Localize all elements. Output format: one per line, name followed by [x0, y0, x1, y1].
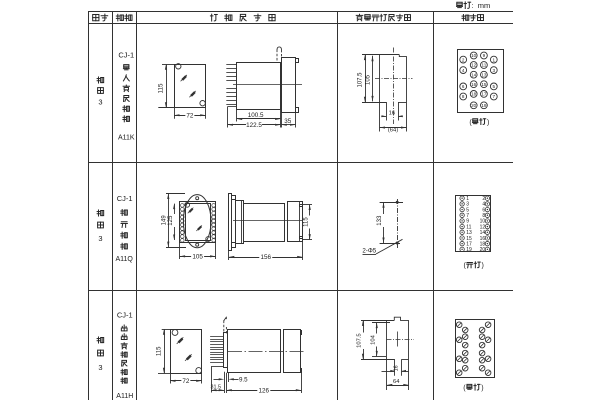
svg-text:9.5: 9.5: [239, 377, 248, 384]
svg-text:104: 104: [370, 334, 376, 344]
svg-text:13: 13: [481, 72, 487, 77]
svg-text:5: 5: [493, 84, 496, 89]
svg-text:7: 7: [493, 94, 496, 99]
svg-text:mm: mm: [478, 1, 491, 10]
svg-text:): ): [487, 119, 489, 126]
svg-text:16: 16: [394, 365, 400, 371]
svg-text:19: 19: [466, 247, 472, 253]
svg-text:16: 16: [389, 110, 395, 116]
svg-text:CJ-1: CJ-1: [117, 311, 133, 320]
svg-text:107.5: 107.5: [357, 333, 363, 348]
svg-text:3: 3: [98, 363, 102, 372]
svg-text:9: 9: [483, 53, 486, 58]
svg-text:126: 126: [259, 387, 270, 394]
svg-text:3: 3: [493, 68, 496, 73]
svg-text:115: 115: [157, 83, 164, 94]
svg-text:8: 8: [462, 94, 465, 99]
svg-text:3: 3: [98, 98, 102, 107]
svg-text:105: 105: [365, 74, 371, 85]
svg-text:2-Φ5: 2-Φ5: [362, 247, 376, 254]
svg-text:2: 2: [462, 57, 465, 62]
svg-text:15: 15: [481, 82, 487, 87]
svg-text:): ): [481, 385, 483, 392]
svg-text:100.5: 100.5: [248, 112, 264, 119]
svg-text:122.5: 122.5: [246, 122, 262, 129]
svg-text:107.5: 107.5: [357, 72, 363, 88]
svg-text:133: 133: [377, 215, 383, 226]
svg-text::: :: [472, 3, 474, 10]
svg-text:CJ-1: CJ-1: [117, 194, 133, 203]
svg-text:149: 149: [162, 215, 168, 226]
svg-text:18: 18: [471, 92, 477, 97]
svg-text:16: 16: [471, 82, 477, 87]
svg-text:64: 64: [393, 379, 400, 385]
svg-text:A11H: A11H: [116, 393, 133, 400]
svg-text:17: 17: [481, 92, 487, 97]
svg-text:125: 125: [168, 215, 174, 226]
svg-text:20: 20: [480, 247, 486, 253]
svg-text:(64): (64): [388, 128, 398, 134]
svg-text:11: 11: [482, 63, 487, 68]
svg-text:12: 12: [471, 63, 477, 68]
svg-text:14: 14: [471, 72, 477, 77]
svg-text:A11Q: A11Q: [116, 256, 134, 263]
svg-text:CJ-1: CJ-1: [118, 51, 134, 60]
svg-text:4: 4: [462, 68, 465, 73]
svg-text:A11K: A11K: [118, 135, 135, 142]
svg-text:115: 115: [156, 346, 162, 356]
svg-text:156: 156: [260, 254, 271, 261]
svg-text:105: 105: [192, 254, 203, 261]
svg-text:6: 6: [462, 84, 465, 89]
svg-text:72: 72: [182, 378, 190, 385]
svg-text:72: 72: [186, 112, 194, 119]
svg-text:10: 10: [471, 53, 477, 58]
svg-text:115: 115: [303, 217, 309, 227]
svg-text:1: 1: [493, 57, 496, 62]
svg-text:35: 35: [284, 118, 292, 125]
svg-text:20: 20: [471, 103, 477, 108]
svg-text:3: 3: [98, 234, 102, 243]
svg-text:19: 19: [481, 103, 487, 108]
svg-text:): ): [482, 263, 484, 270]
